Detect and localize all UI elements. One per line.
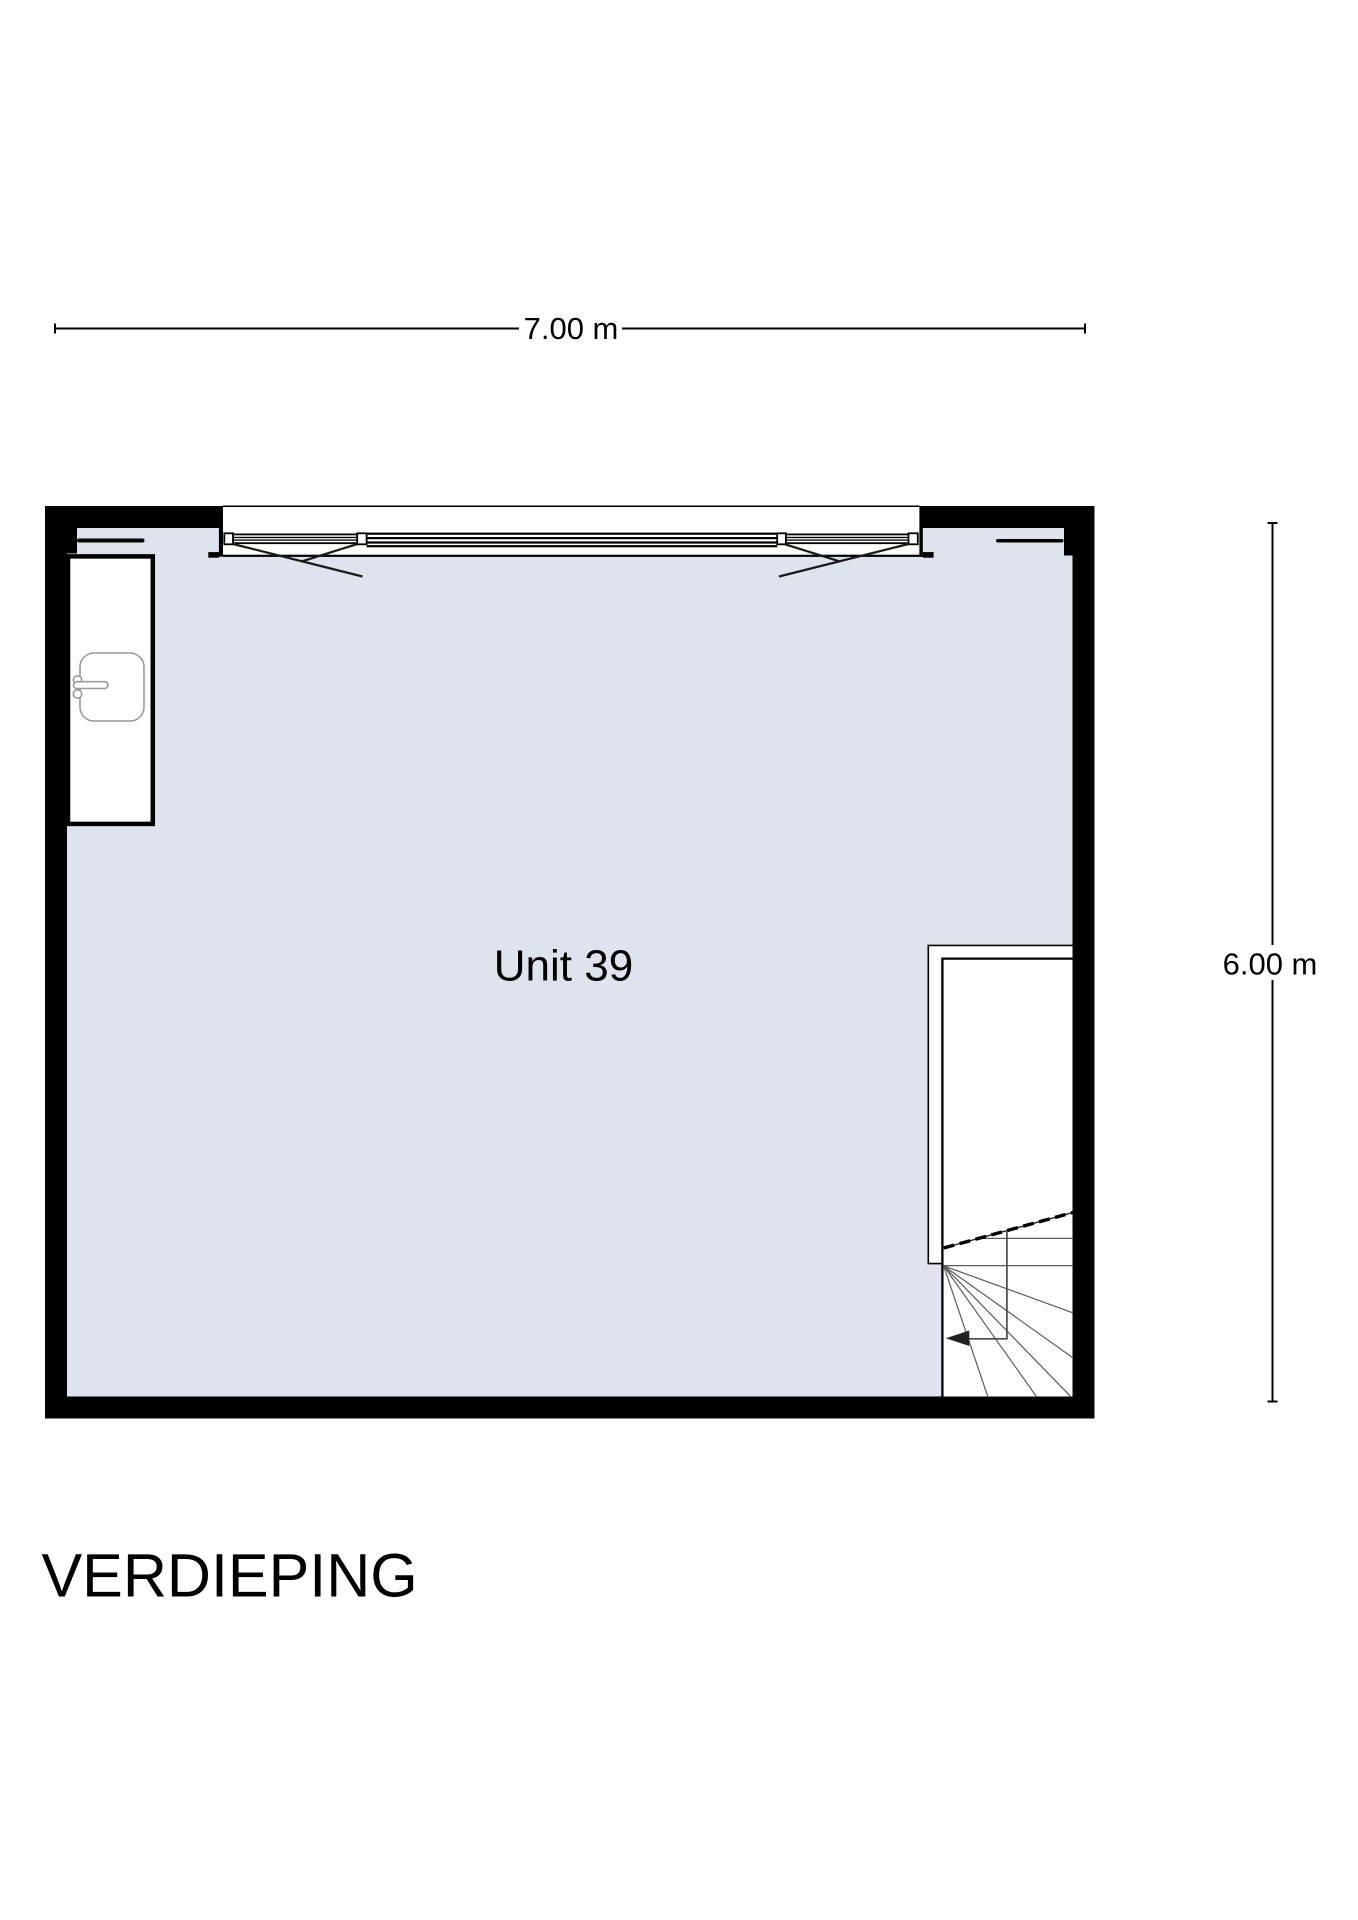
svg-text:VERDIEPING: VERDIEPING xyxy=(42,1542,418,1610)
svg-text:7.00 m: 7.00 m xyxy=(524,311,619,346)
svg-text:Unit 39: Unit 39 xyxy=(494,942,633,991)
svg-text:6.00 m: 6.00 m xyxy=(1223,947,1318,982)
